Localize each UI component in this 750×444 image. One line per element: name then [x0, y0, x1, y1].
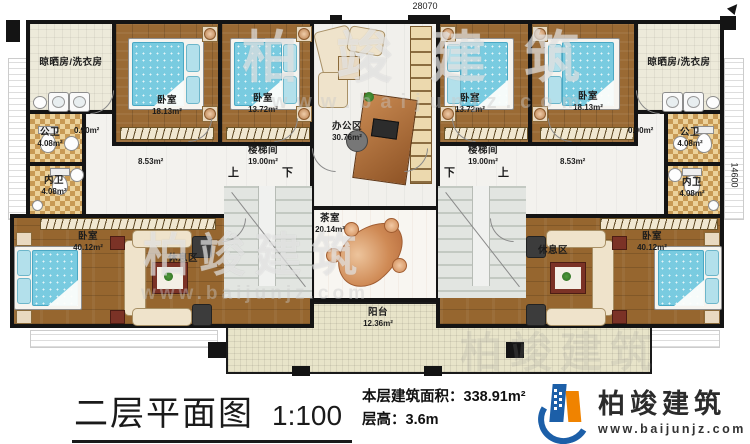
label-balcony: 阳台 12.36m²: [338, 308, 418, 328]
column: [292, 366, 310, 376]
brand-logo-text: 柏竣建筑 www.baijunjz.com: [598, 382, 746, 436]
logo-building-orange: [566, 391, 582, 422]
column: [720, 16, 736, 30]
label-privbath-left: 内卫 4.08m²: [30, 176, 78, 196]
side-table: [612, 310, 627, 324]
bed-bl-pillow: [17, 250, 31, 276]
label-bedroom-tl1: 卧室 18.13m²: [132, 96, 202, 116]
plan-scale: 1:100: [272, 400, 342, 432]
dimension-top: 28070: [395, 1, 455, 11]
deck-right: [724, 58, 744, 220]
washing-machine: [48, 92, 69, 112]
label-bedroom-bl: 卧室 40.12m²: [56, 232, 120, 252]
tea-stool: [326, 248, 341, 263]
tea-stool: [384, 218, 399, 233]
washing-machine: [69, 92, 90, 112]
column: [6, 20, 20, 42]
label-rest-right: 休息区: [528, 246, 578, 257]
bed-bl-pillow: [17, 278, 31, 304]
bed-bl-mattress: [32, 250, 78, 306]
brand-website: www.baijunjz.com: [598, 422, 746, 436]
bed-tl2-pillow: [283, 44, 297, 72]
brand-logo: 柏竣建筑 www.baijunjz.com: [538, 382, 746, 436]
sofa-left-arm: [132, 230, 192, 248]
deck-left: [8, 58, 28, 220]
bed-tr2-pillow: [447, 44, 461, 72]
sofa-right-arm: [546, 308, 606, 326]
wardrobe-bedroom-bl: [40, 218, 216, 230]
armchair: [526, 304, 546, 326]
laundry-sink: [33, 96, 47, 109]
stair-down-right: 下: [444, 164, 455, 180]
armchair: [192, 304, 212, 326]
laundry-sink: [706, 96, 720, 109]
bed-br-pillow: [705, 250, 719, 276]
column: [424, 366, 442, 376]
lamp: [534, 28, 546, 40]
label-privbath-right: 内卫 4.08m²: [668, 178, 716, 198]
label-bedroom-br: 卧室 40.12m²: [620, 232, 684, 252]
label-tearoom: 茶室 20.14m²: [298, 214, 362, 234]
bed-tl1-pillow: [186, 44, 200, 72]
label-hall-right: 8.53m²: [560, 157, 585, 166]
office-table: [338, 56, 360, 80]
brand-name: 柏竣建筑: [598, 382, 746, 421]
sofa-left-back: [124, 240, 146, 316]
label-bedroom-tl2: 卧室 13.72m²: [228, 94, 298, 114]
wall-tick: [330, 15, 342, 24]
plan-title-block: 二层平面图 1:100: [72, 386, 352, 443]
lamp: [298, 28, 310, 40]
nightstand: [704, 310, 720, 324]
wall-tick: [408, 15, 450, 24]
sofa-right-back: [592, 240, 614, 316]
label-laundry-left: 晾晒房/洗衣房: [26, 58, 116, 69]
stat-floor-area: 本层建筑面积：338.91m²: [362, 386, 526, 409]
north-arrow-icon: [727, 1, 741, 15]
floorplan-canvas: 晾晒房/洗衣房 卧室 18.13m² 卧室 13.72m² 办公区 30.76m…: [0, 0, 750, 444]
plan-stats: 本层建筑面积：338.91m² 层高：3.6m: [362, 386, 526, 432]
plan-title: 二层平面图: [74, 386, 254, 435]
deck-bottom-left: [30, 330, 218, 348]
office-plant: [364, 92, 374, 102]
label-rest-left: 休息区: [158, 254, 208, 265]
bed-br-pillow: [705, 278, 719, 304]
column: [208, 342, 226, 358]
shower-drain: [708, 200, 719, 211]
label-corridor-left: 0.90m²: [74, 126, 99, 135]
label-bedroom-tr1: 卧室 18.13m²: [553, 92, 623, 112]
footer: 二层平面图 1:100 本层建筑面积：338.91m² 层高：3.6m 柏竣建筑…: [0, 378, 750, 444]
lamp: [442, 28, 454, 40]
label-pubbath-right: 公卫 4.08m²: [666, 128, 714, 148]
label-laundry-right: 晾晒房/洗衣房: [634, 58, 724, 69]
plant: [562, 272, 571, 281]
washing-machine: [662, 92, 683, 112]
shower-drain: [32, 200, 43, 211]
lamp: [298, 108, 310, 120]
stat-floor-height: 层高：3.6m: [362, 409, 526, 432]
washing-machine: [683, 92, 704, 112]
label-bedroom-tr2: 卧室 13.72m²: [435, 94, 505, 114]
wardrobe-bedroom-br: [600, 218, 718, 230]
sofa-left-arm: [132, 308, 192, 326]
column: [506, 342, 524, 358]
nightstand: [16, 310, 32, 324]
brand-logo-icon: [538, 382, 590, 436]
lamp: [204, 28, 216, 40]
nightstand: [16, 232, 32, 246]
stair-up-right: 上: [498, 164, 509, 180]
label-pubbath-left: 公卫 4.08m²: [26, 128, 74, 148]
label-corridor-right: 0.90m²: [628, 126, 653, 135]
stair-up-left: 上: [228, 164, 239, 180]
tea-stool: [392, 258, 407, 273]
plant: [164, 272, 173, 281]
side-table: [110, 310, 125, 324]
nightstand: [704, 232, 720, 246]
label-office: 办公区 30.76m²: [312, 122, 382, 142]
bed-tr1-pillow: [548, 44, 562, 72]
bed-br-mattress: [658, 250, 704, 306]
stair-down-left: 下: [282, 164, 293, 180]
wardrobe-bedroom-tl2: [226, 127, 310, 140]
label-hall-left: 8.53m²: [138, 157, 163, 166]
logo-windows: [554, 389, 557, 392]
dimension-right: 14600: [730, 162, 740, 187]
lamp: [534, 108, 546, 120]
